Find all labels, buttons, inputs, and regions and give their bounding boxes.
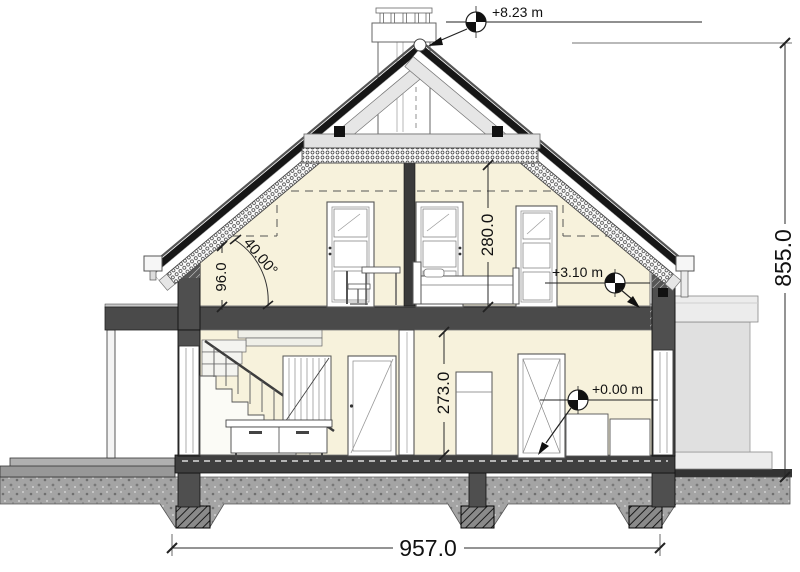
terrace-left [0, 458, 175, 477]
right-wall-window [653, 350, 673, 455]
ground-height-label: 273.0 [434, 372, 453, 415]
attic-ceiling-insulation [302, 148, 538, 163]
canopy-post [107, 330, 115, 458]
attic-level-label: +3.10 m [552, 264, 603, 280]
section-canvas: 957.0 855.0 280.0 273.0 96.0 40.00° +8.2… [0, 0, 800, 572]
total-width-dimension: 957.0 [167, 534, 665, 561]
total-width-label: 957.0 [399, 535, 457, 561]
ridge-cap [414, 39, 426, 51]
chimney-duct-ground [399, 330, 414, 455]
ground-level-label: +0.00 m [592, 381, 643, 397]
ridge-level-label: +8.23 m [492, 4, 543, 20]
technical-door [518, 354, 565, 458]
ground-floor-slab [175, 455, 675, 473]
left-wall-window [179, 346, 199, 455]
attic-door-3 [516, 206, 557, 307]
ground-line-right [655, 469, 792, 477]
kitchen-cabinets-right [566, 414, 650, 456]
sideboard-cabinet [226, 420, 332, 459]
annex-elevation [674, 296, 772, 469]
hall-door-ground [348, 356, 396, 456]
knee-wall-label: 96.0 [213, 262, 230, 291]
attic-door-1 [327, 202, 374, 307]
tall-cabinet [456, 372, 492, 455]
glazed-door-ground [283, 356, 331, 424]
attic-height-label: 280.0 [478, 214, 497, 257]
total-height-label: 855.0 [770, 229, 796, 287]
ridge-level-marker: +8.23 m [428, 4, 702, 46]
house-section-drawing: 957.0 855.0 280.0 273.0 96.0 40.00° +8.2… [0, 0, 800, 572]
